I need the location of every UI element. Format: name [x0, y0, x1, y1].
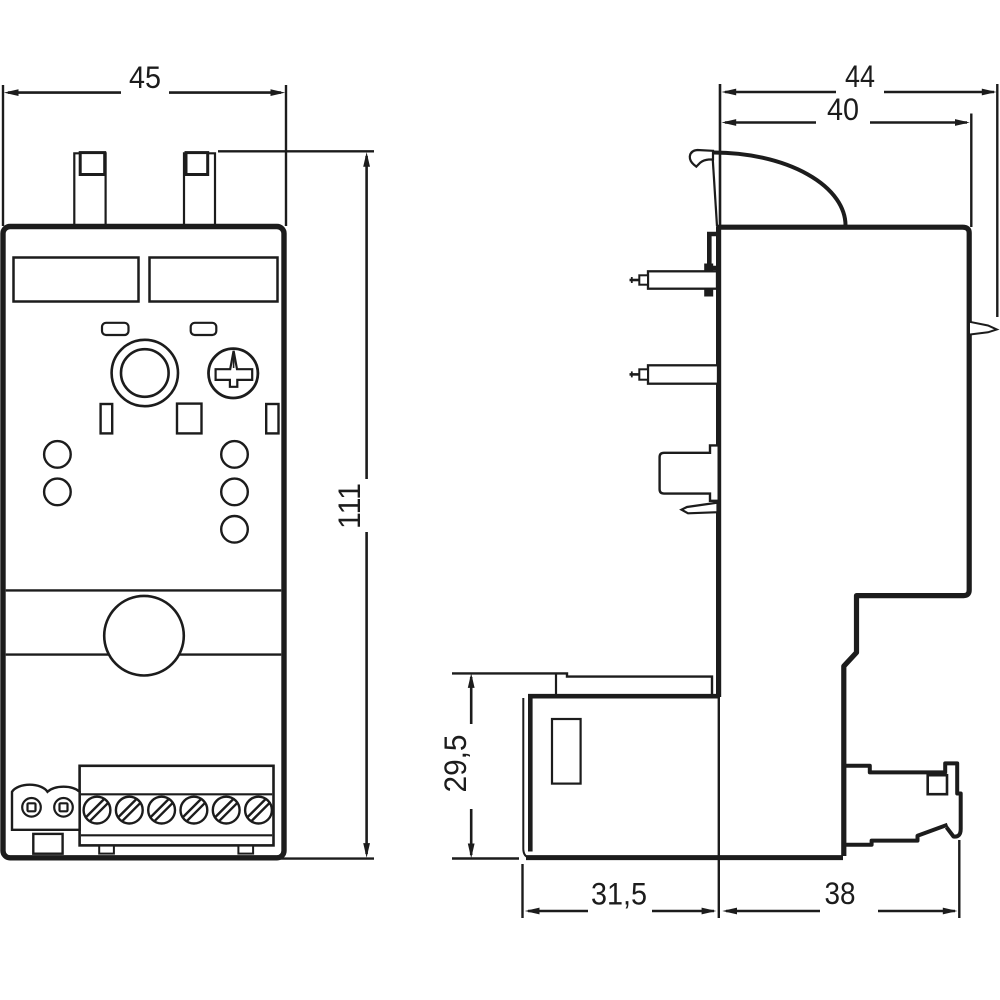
- svg-text:111: 111: [331, 483, 367, 529]
- svg-text:40: 40: [827, 91, 859, 127]
- svg-text:29,5: 29,5: [437, 735, 473, 793]
- svg-text:45: 45: [129, 59, 161, 95]
- svg-text:44: 44: [845, 58, 875, 94]
- svg-text:38: 38: [825, 875, 856, 911]
- svg-text:31,5: 31,5: [591, 876, 647, 912]
